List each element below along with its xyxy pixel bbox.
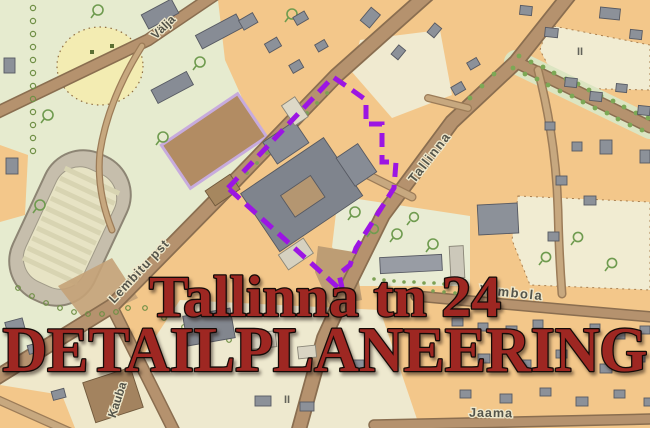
- title-line2: DETAILPLANEERING: [3, 314, 648, 385]
- storey-marker-ne: II: [577, 46, 583, 58]
- orange-patch-left: [0, 145, 28, 222]
- street-label-jaama: Jaama: [469, 406, 513, 421]
- detail-plan-map: Välja Tallinna Lembitu pst Kauba Vambola…: [0, 0, 650, 428]
- orchard-block: [512, 196, 650, 290]
- map-canvas: Välja Tallinna Lembitu pst Kauba Vambola…: [0, 0, 650, 428]
- storey-marker-sw: II: [284, 394, 290, 406]
